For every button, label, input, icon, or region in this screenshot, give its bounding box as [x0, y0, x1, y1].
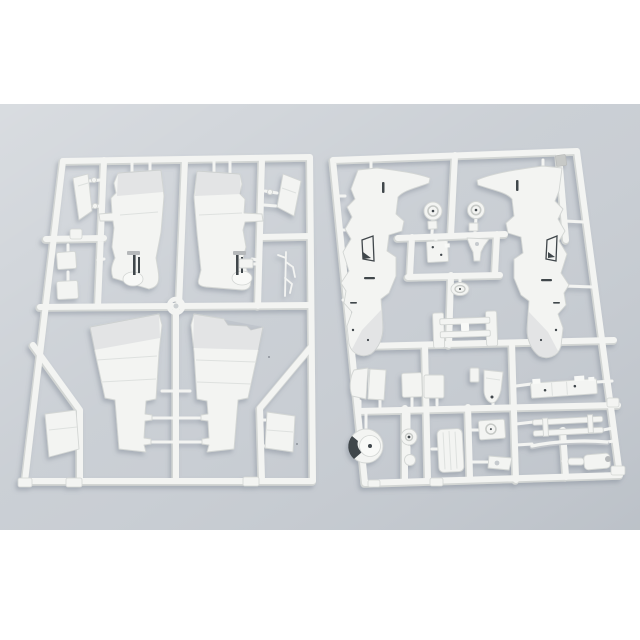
- bay-door-pair: [350, 368, 386, 400]
- avionics-plate: [426, 240, 450, 262]
- access-panel-upper: [56, 251, 76, 269]
- corner-foot: [66, 478, 82, 487]
- main-wheel: [348, 429, 383, 463]
- corner-foot: [611, 466, 625, 475]
- hub-cap: [401, 429, 417, 445]
- dust-speck: [268, 356, 270, 358]
- hub-block-left: [428, 221, 437, 229]
- sprue-photo: [0, 0, 640, 640]
- product-photo-canvas: [0, 0, 640, 640]
- instrument-dome: [451, 283, 469, 296]
- gate-blob: [91, 177, 96, 182]
- runner-tab: [607, 398, 619, 407]
- small-door: [470, 368, 479, 382]
- panel-with-ring: [478, 419, 505, 440]
- dust-speck: [296, 443, 298, 445]
- fuel-tank: [437, 428, 464, 472]
- sprue-gate-tab: [555, 154, 566, 166]
- corner-foot: [368, 480, 380, 487]
- hub-block-right: [469, 223, 478, 231]
- runner-tab: [70, 229, 82, 239]
- ring-grommet-hole: [174, 304, 179, 309]
- corner-foot: [243, 477, 259, 486]
- gear-door-right: [424, 375, 444, 398]
- wedge-bracket: [488, 456, 512, 470]
- corner-foot: [18, 478, 32, 487]
- gate-blob: [92, 203, 97, 208]
- flap-left: [45, 410, 79, 457]
- control-ball: [405, 455, 416, 466]
- access-panel-lower: [57, 280, 79, 299]
- gear-door-left: [402, 373, 423, 398]
- gate-blob: [267, 189, 272, 194]
- corner-foot: [430, 478, 443, 486]
- trim-tab: [239, 259, 253, 268]
- wheel-hub-left: [424, 202, 442, 220]
- wheel-hub-right: [468, 202, 485, 219]
